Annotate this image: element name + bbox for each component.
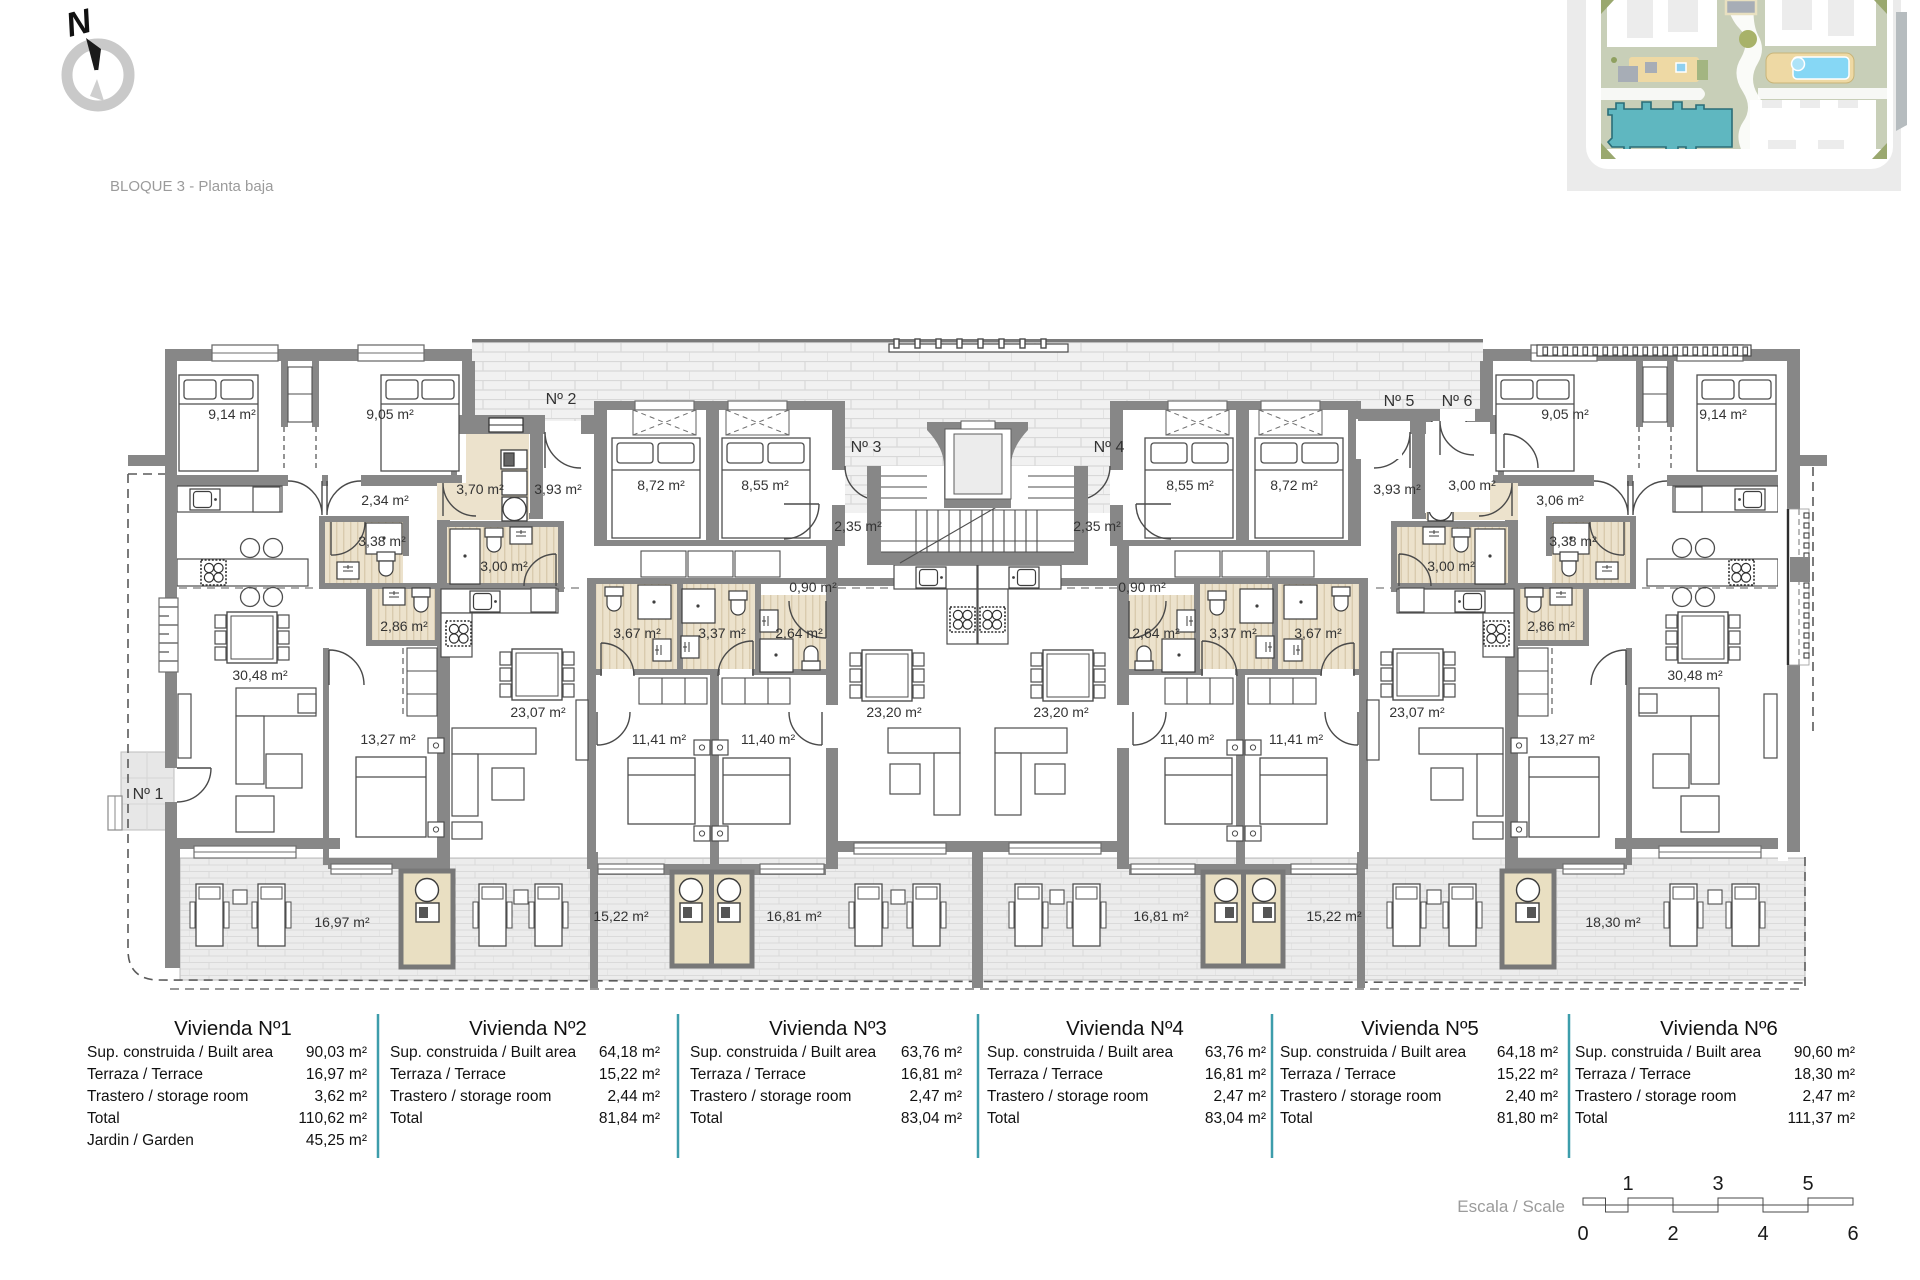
svg-text:16,81 m²: 16,81 m² [901, 1066, 962, 1083]
svg-text:Terraza / Terrace: Terraza / Terrace [390, 1066, 506, 1083]
svg-text:8,72 m²: 8,72 m² [637, 477, 685, 493]
svg-text:15,22 m²: 15,22 m² [1306, 908, 1362, 924]
svg-text:2,64 m²: 2,64 m² [775, 625, 823, 641]
svg-text:83,04 m²: 83,04 m² [901, 1110, 962, 1127]
svg-text:3,00 m²: 3,00 m² [480, 558, 528, 574]
svg-text:Sup. construida / Built area: Sup. construida / Built area [1575, 1044, 1761, 1061]
svg-text:2,86 m²: 2,86 m² [1527, 618, 1575, 634]
svg-text:3,00 m²: 3,00 m² [1427, 558, 1475, 574]
svg-text:Nº 1: Nº 1 [133, 786, 164, 803]
svg-text:2,40 m²: 2,40 m² [1505, 1088, 1558, 1105]
svg-text:2: 2 [1667, 1223, 1678, 1245]
svg-text:30,48 m²: 30,48 m² [232, 667, 288, 683]
svg-text:18,30 m²: 18,30 m² [1794, 1066, 1855, 1083]
svg-text:3,37 m²: 3,37 m² [1209, 625, 1257, 641]
svg-text:3,06 m²: 3,06 m² [1536, 492, 1584, 508]
svg-text:Trastero / storage room: Trastero / storage room [1280, 1088, 1441, 1105]
svg-text:11,41 m²: 11,41 m² [1269, 731, 1324, 747]
svg-text:3,62 m²: 3,62 m² [314, 1088, 367, 1105]
svg-text:2,44 m²: 2,44 m² [607, 1088, 660, 1105]
svg-text:8,72 m²: 8,72 m² [1270, 477, 1318, 493]
svg-text:Nº 6: Nº 6 [1442, 393, 1473, 410]
svg-text:Total: Total [987, 1110, 1020, 1127]
svg-text:Total: Total [1575, 1110, 1608, 1127]
svg-text:8,55 m²: 8,55 m² [1166, 477, 1214, 493]
svg-text:63,76 m²: 63,76 m² [1205, 1044, 1266, 1061]
svg-text:81,80 m²: 81,80 m² [1497, 1110, 1558, 1127]
svg-text:Trastero / storage room: Trastero / storage room [690, 1088, 851, 1105]
svg-text:Trastero / storage room: Trastero / storage room [390, 1088, 551, 1105]
svg-text:0,90 m²: 0,90 m² [1118, 579, 1166, 595]
svg-text:5: 5 [1802, 1173, 1813, 1195]
svg-text:Sup. construida / Built area: Sup. construida / Built area [1280, 1044, 1466, 1061]
svg-text:Terraza / Terrace: Terraza / Terrace [987, 1066, 1103, 1083]
svg-text:11,40 m²: 11,40 m² [1160, 731, 1215, 747]
svg-text:9,14 m²: 9,14 m² [1699, 406, 1747, 422]
svg-text:Terraza / Terrace: Terraza / Terrace [87, 1066, 203, 1083]
svg-text:13,27 m²: 13,27 m² [360, 731, 416, 747]
svg-text:Total: Total [690, 1110, 723, 1127]
svg-text:Jardin / Garden: Jardin / Garden [87, 1132, 194, 1149]
svg-text:23,07 m²: 23,07 m² [1389, 704, 1445, 720]
svg-text:13,27 m²: 13,27 m² [1539, 731, 1595, 747]
svg-text:2,47 m²: 2,47 m² [1213, 1088, 1266, 1105]
svg-text:2,34 m²: 2,34 m² [361, 492, 409, 508]
svg-text:8,55 m²: 8,55 m² [741, 477, 789, 493]
svg-text:16,81 m²: 16,81 m² [1205, 1066, 1266, 1083]
svg-text:3: 3 [1712, 1173, 1723, 1195]
svg-text:18,30 m²: 18,30 m² [1585, 914, 1641, 930]
svg-text:1: 1 [1622, 1173, 1633, 1195]
svg-text:Nº 5: Nº 5 [1384, 393, 1415, 410]
svg-text:0,90 m²: 0,90 m² [789, 579, 837, 595]
svg-text:9,14 m²: 9,14 m² [208, 406, 256, 422]
svg-text:2,47 m²: 2,47 m² [909, 1088, 962, 1105]
svg-text:2,86 m²: 2,86 m² [380, 618, 428, 634]
svg-text:90,03 m²: 90,03 m² [306, 1044, 367, 1061]
svg-text:110,62 m²: 110,62 m² [298, 1110, 367, 1127]
svg-text:90,60 m²: 90,60 m² [1794, 1044, 1855, 1061]
svg-text:Vivienda Nº1: Vivienda Nº1 [174, 1017, 292, 1040]
svg-text:Vivienda Nº5: Vivienda Nº5 [1361, 1017, 1479, 1040]
svg-text:0: 0 [1577, 1223, 1588, 1245]
svg-text:81,84 m²: 81,84 m² [599, 1110, 660, 1127]
svg-text:3,93 m²: 3,93 m² [1373, 481, 1421, 497]
svg-text:6: 6 [1847, 1223, 1858, 1245]
svg-text:2,35 m²: 2,35 m² [834, 518, 882, 534]
svg-text:64,18 m²: 64,18 m² [1497, 1044, 1558, 1061]
svg-text:30,48 m²: 30,48 m² [1667, 667, 1723, 683]
svg-text:Vivienda Nº4: Vivienda Nº4 [1066, 1017, 1184, 1040]
svg-text:3,38 m²: 3,38 m² [1549, 533, 1597, 549]
svg-text:23,07 m²: 23,07 m² [510, 704, 566, 720]
svg-text:45,25 m²: 45,25 m² [306, 1132, 367, 1149]
svg-text:3,38 m²: 3,38 m² [358, 533, 406, 549]
svg-text:3,00 m²: 3,00 m² [1448, 477, 1496, 493]
svg-text:23,20 m²: 23,20 m² [1033, 704, 1089, 720]
svg-text:3,37 m²: 3,37 m² [698, 625, 746, 641]
svg-text:2,35 m²: 2,35 m² [1073, 518, 1121, 534]
svg-text:3,70 m²: 3,70 m² [456, 481, 504, 497]
svg-text:Vivienda Nº3: Vivienda Nº3 [769, 1017, 887, 1040]
svg-text:16,81 m²: 16,81 m² [1133, 908, 1189, 924]
svg-text:3,93 m²: 3,93 m² [534, 481, 582, 497]
svg-text:Trastero / storage room: Trastero / storage room [1575, 1088, 1736, 1105]
svg-text:4: 4 [1757, 1223, 1768, 1245]
svg-text:83,04 m²: 83,04 m² [1205, 1110, 1266, 1127]
svg-text:Total: Total [87, 1110, 120, 1127]
svg-text:15,22 m²: 15,22 m² [593, 908, 649, 924]
svg-text:Vivienda Nº2: Vivienda Nº2 [469, 1017, 587, 1040]
svg-text:Nº 3: Nº 3 [851, 439, 882, 456]
svg-text:Nº 4: Nº 4 [1094, 439, 1125, 456]
svg-text:2,47 m²: 2,47 m² [1802, 1088, 1855, 1105]
svg-text:Total: Total [1280, 1110, 1313, 1127]
svg-text:15,22 m²: 15,22 m² [599, 1066, 660, 1083]
svg-text:11,40 m²: 11,40 m² [741, 731, 796, 747]
svg-text:16,81 m²: 16,81 m² [766, 908, 822, 924]
svg-text:Total: Total [390, 1110, 423, 1127]
svg-text:Sup. construida / Built area: Sup. construida / Built area [87, 1044, 273, 1061]
svg-text:16,97 m²: 16,97 m² [314, 914, 370, 930]
svg-text:Terraza / Terrace: Terraza / Terrace [1280, 1066, 1396, 1083]
svg-text:3,67 m²: 3,67 m² [613, 625, 661, 641]
svg-text:111,37 m²: 111,37 m² [1788, 1110, 1856, 1127]
svg-text:63,76 m²: 63,76 m² [901, 1044, 962, 1061]
svg-text:9,05 m²: 9,05 m² [366, 406, 414, 422]
svg-text:Sup. construida / Built area: Sup. construida / Built area [390, 1044, 576, 1061]
svg-text:3,67 m²: 3,67 m² [1294, 625, 1342, 641]
svg-text:23,20 m²: 23,20 m² [866, 704, 922, 720]
svg-text:BLOQUE 3 - Planta baja: BLOQUE 3 - Planta baja [110, 178, 274, 195]
svg-text:9,05 m²: 9,05 m² [1541, 406, 1589, 422]
svg-text:Nº 2: Nº 2 [546, 391, 577, 408]
svg-text:64,18 m²: 64,18 m² [599, 1044, 660, 1061]
svg-text:2,64 m²: 2,64 m² [1132, 625, 1180, 641]
svg-text:Terraza / Terrace: Terraza / Terrace [1575, 1066, 1691, 1083]
svg-text:Trastero / storage room: Trastero / storage room [87, 1088, 248, 1105]
svg-text:Trastero / storage room: Trastero / storage room [987, 1088, 1148, 1105]
svg-text:Sup. construida / Built area: Sup. construida / Built area [690, 1044, 876, 1061]
svg-text:Vivienda Nº6: Vivienda Nº6 [1660, 1017, 1778, 1040]
svg-text:Escala / Scale: Escala / Scale [1457, 1197, 1565, 1216]
svg-text:16,97 m²: 16,97 m² [306, 1066, 367, 1083]
svg-text:11,41 m²: 11,41 m² [632, 731, 687, 747]
svg-text:Terraza / Terrace: Terraza / Terrace [690, 1066, 806, 1083]
svg-text:Sup. construida / Built area: Sup. construida / Built area [987, 1044, 1173, 1061]
svg-text:15,22 m²: 15,22 m² [1497, 1066, 1558, 1083]
